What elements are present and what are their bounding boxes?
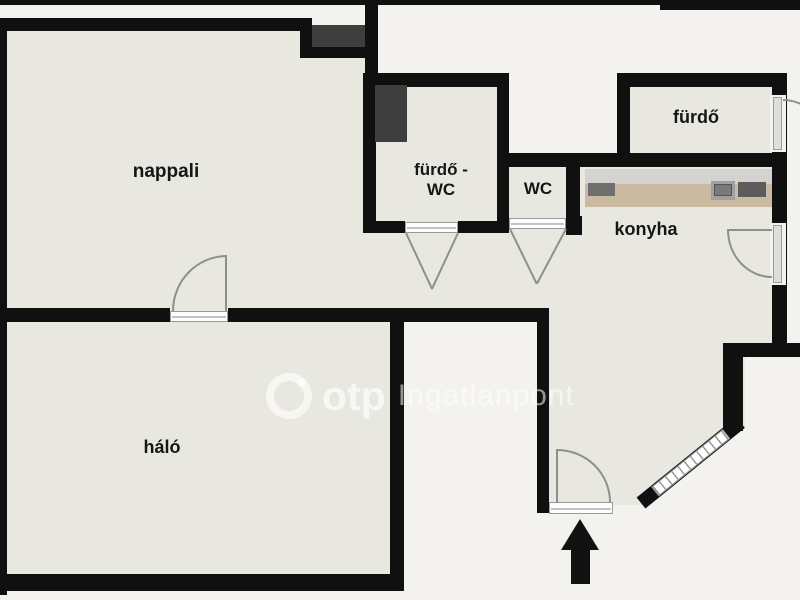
- entrance-arrow-icon: [561, 519, 599, 550]
- wall-segment: [0, 308, 170, 322]
- door-threshold-halo: [170, 311, 228, 322]
- wall-segment: [0, 18, 7, 595]
- watermark-logo-dot: [297, 378, 306, 387]
- kitchen-sink-basin: [714, 184, 732, 196]
- door-leaf-line: [407, 227, 456, 229]
- door-leaf-konyha-east: [773, 225, 782, 283]
- room-label-furdo: fürdő: [636, 107, 756, 129]
- builtin-cabinet: [312, 25, 365, 47]
- room-label-wc: WC: [508, 179, 568, 199]
- room-label-konyha: konyha: [586, 219, 706, 241]
- room-label-halo: háló: [102, 437, 222, 459]
- door-threshold-entrance: [549, 502, 613, 514]
- wall-segment: [566, 216, 582, 235]
- door-leaf-entrance: [556, 449, 558, 503]
- door-leaf-halo: [225, 255, 227, 311]
- door-leaf-line: [172, 316, 226, 318]
- door-arc-furdo-east: [783, 99, 800, 149]
- watermark-logo-icon: [266, 373, 312, 419]
- wall-segment: [660, 0, 800, 10]
- room-label-nappali: nappali: [100, 161, 232, 184]
- wall-segment: [566, 153, 580, 223]
- door-threshold-wc: [509, 218, 566, 229]
- builtin-shaft: [375, 85, 407, 142]
- kitchen-appliance: [588, 183, 615, 196]
- door-leaf-line: [511, 223, 564, 225]
- floorplan: nappali fürdő - WC WC konyha fürdő háló …: [0, 0, 800, 600]
- kitchen-stove: [738, 182, 766, 197]
- door-leaf-line: [551, 508, 611, 510]
- wall-segment: [458, 221, 509, 233]
- wall-segment: [617, 73, 630, 167]
- wall-segment: [390, 320, 404, 578]
- door-leaf-konyha-east: [727, 229, 772, 231]
- watermark-brand-text: otp: [322, 373, 386, 420]
- wall-segment: [497, 153, 787, 167]
- wall-segment: [0, 18, 312, 31]
- door-leaf-furdo-east: [773, 97, 782, 150]
- room-label-furdo-wc-line2: WC: [383, 180, 499, 200]
- room-label-furdo-wc-line1: fürdő -: [383, 160, 499, 180]
- room-label-furdo-wc: fürdő - WC: [383, 160, 499, 201]
- wall-segment: [0, 574, 404, 591]
- watermark: otp Ingatlanpont: [266, 370, 575, 422]
- wall-segment: [228, 308, 549, 322]
- door-threshold-furdo-wc: [405, 222, 458, 233]
- entrance-arrow-shaft: [571, 547, 590, 584]
- watermark-suffix-text: Ingatlanpont: [398, 379, 575, 413]
- wall-segment: [617, 73, 787, 87]
- wall-segment: [363, 221, 405, 233]
